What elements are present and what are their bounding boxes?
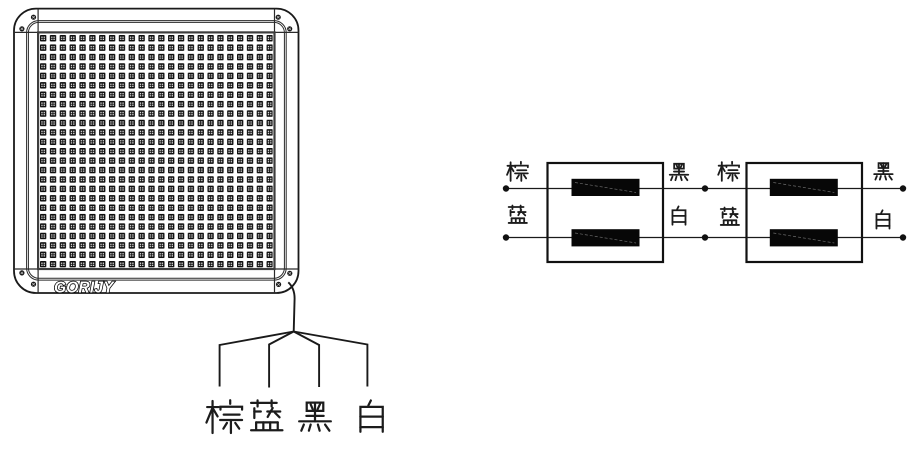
svg-text:GORIJY: GORIJY xyxy=(54,279,115,296)
